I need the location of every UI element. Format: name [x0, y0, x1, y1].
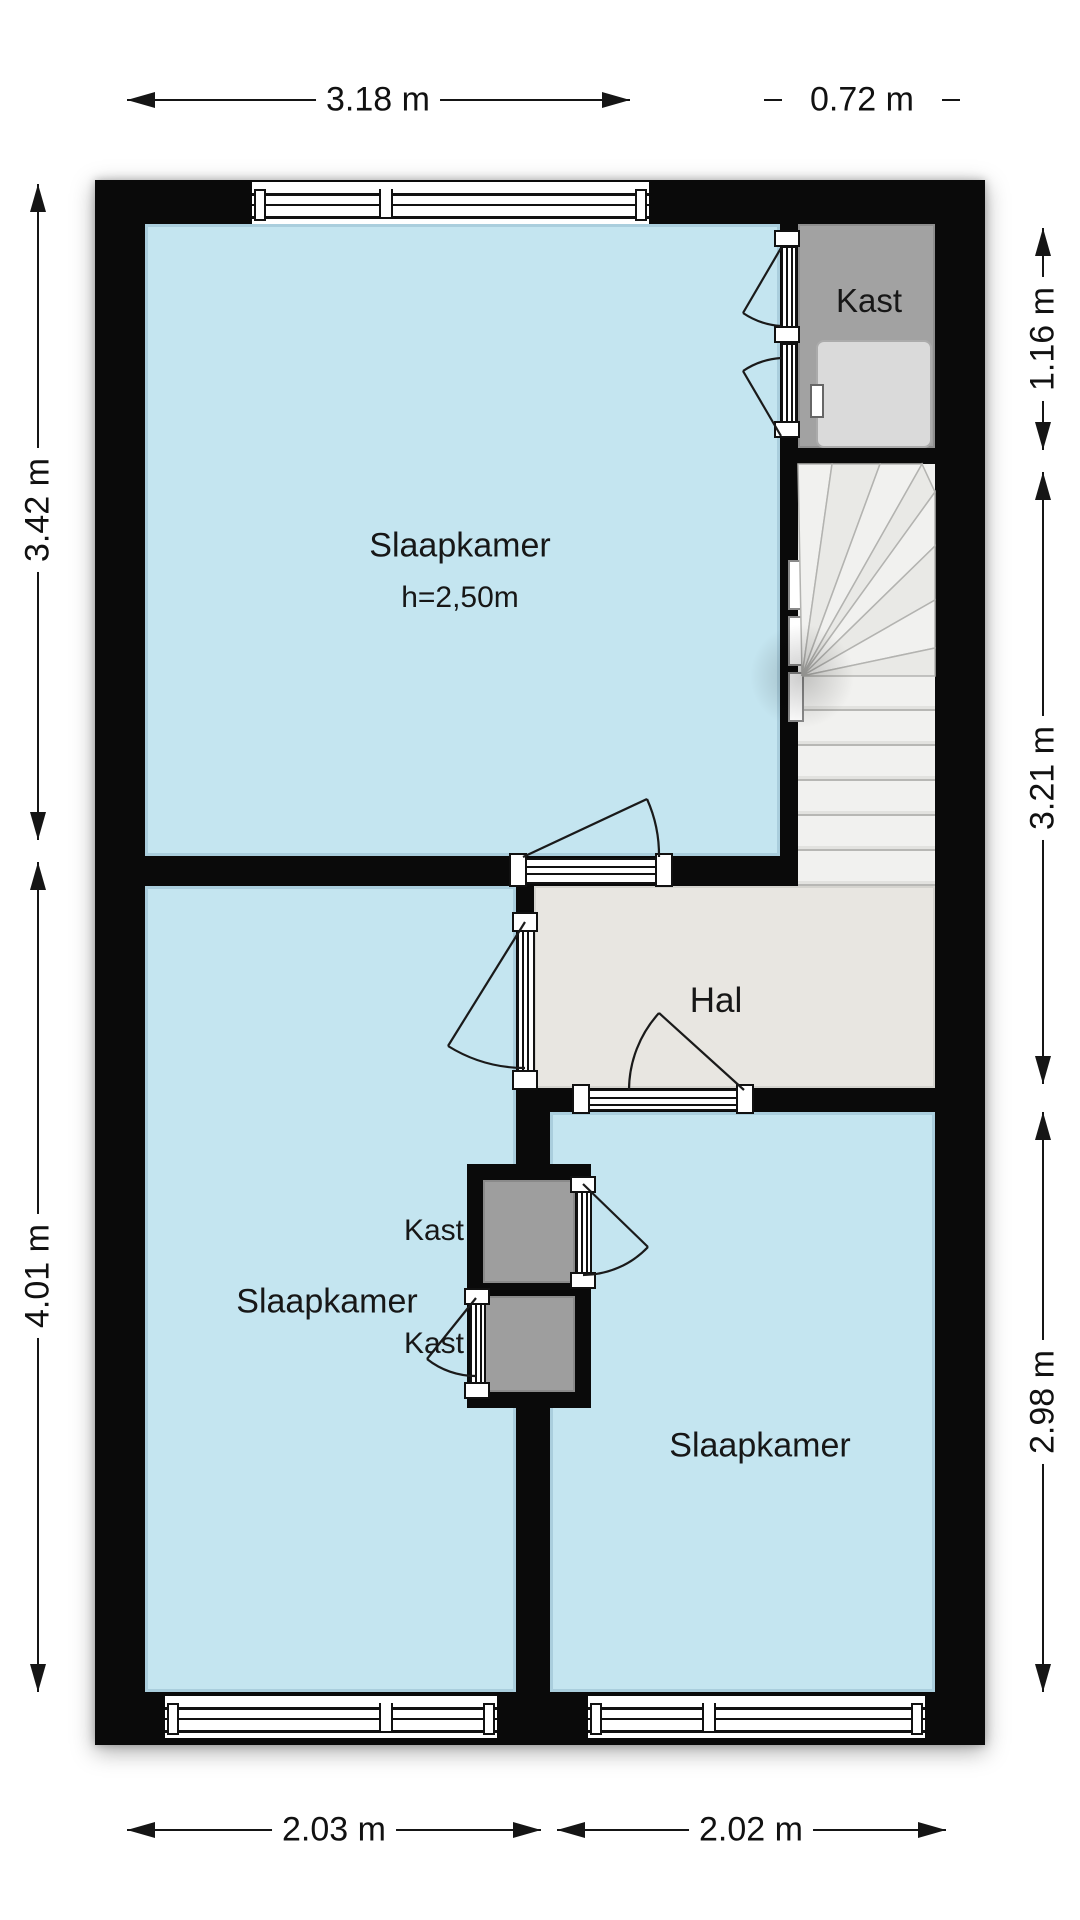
window-mullion — [379, 1703, 393, 1731]
window-end-post — [590, 1703, 602, 1735]
door-post — [464, 1382, 490, 1399]
window-bottom-right — [588, 1696, 925, 1738]
door-post — [509, 853, 527, 887]
stair-rail-post — [788, 616, 804, 666]
room-bedroom-right — [550, 1112, 935, 1692]
label-bedroom-left: Slaapkamer — [236, 1283, 417, 1322]
floorplan-page: 3.18 m 0.72 m 3.42 m 4.01 m 1.16 m 3.21 … — [0, 0, 1080, 1920]
door-post — [655, 853, 673, 887]
window-mullion — [702, 1703, 716, 1731]
window-glass — [588, 1707, 925, 1733]
door-post — [774, 326, 800, 343]
door-post — [736, 1084, 754, 1114]
door-post — [572, 1084, 590, 1114]
dim-right-bedroom: 2.98 m — [1024, 1340, 1063, 1464]
dim-top-closet: 0.72 m — [800, 81, 924, 120]
room-closet-middle-top — [483, 1180, 575, 1283]
window-glass — [165, 1707, 497, 1733]
label-closet-top-right: Kast — [836, 282, 902, 320]
door-post — [512, 912, 538, 932]
door-post — [570, 1176, 596, 1193]
label-closet-middle-top: Kast — [404, 1214, 464, 1248]
window-bottom-left — [165, 1696, 497, 1738]
window-end-post — [635, 189, 647, 221]
door-frame-closet-lower — [781, 343, 797, 425]
window-mullion — [379, 189, 393, 217]
dim-top-main: 3.18 m — [316, 81, 440, 120]
door-frame-bedroom-top — [525, 858, 657, 884]
stair-rail-post — [788, 560, 804, 610]
door-post — [774, 421, 800, 438]
door-post — [512, 1070, 538, 1090]
stairs-straight-area — [798, 676, 935, 886]
dim-left-upper: 3.42 m — [19, 448, 58, 572]
window-end-post — [254, 189, 266, 221]
dim-bottom-left: 2.03 m — [272, 1811, 396, 1850]
label-bedroom-top: Slaapkamer — [369, 527, 550, 566]
label-bedroom-right: Slaapkamer — [669, 1427, 850, 1466]
window-end-post — [911, 1703, 923, 1735]
door-frame-closet-upper — [781, 246, 797, 330]
door-post — [464, 1288, 490, 1305]
dim-right-stairs: 3.21 m — [1024, 716, 1063, 840]
door-post — [774, 230, 800, 247]
stair-rail-post — [788, 672, 804, 722]
appliance-handle — [810, 384, 824, 418]
door-frame-bedroom-right — [582, 1089, 744, 1111]
window-glass — [252, 193, 649, 219]
dim-left-lower: 4.01 m — [19, 1214, 58, 1338]
door-frame-closet-mid-top — [576, 1188, 592, 1278]
dim-bottom-right: 2.02 m — [689, 1811, 813, 1850]
label-bedroom-top-height: h=2,50m — [401, 581, 519, 615]
door-frame-closet-mid-bottom — [470, 1300, 486, 1388]
window-top — [252, 182, 649, 224]
label-closet-middle-bottom: Kast — [404, 1327, 464, 1361]
room-closet-middle-bottom — [483, 1296, 575, 1392]
floor-plan — [95, 180, 985, 1745]
dim-right-closet: 1.16 m — [1024, 277, 1063, 401]
door-frame-bedroom-left — [517, 930, 535, 1072]
stairs-winder-area — [798, 464, 935, 676]
closet-appliance — [816, 340, 932, 448]
window-end-post — [483, 1703, 495, 1735]
window-end-post — [167, 1703, 179, 1735]
label-hall: Hal — [690, 981, 743, 1021]
door-post — [570, 1272, 596, 1289]
